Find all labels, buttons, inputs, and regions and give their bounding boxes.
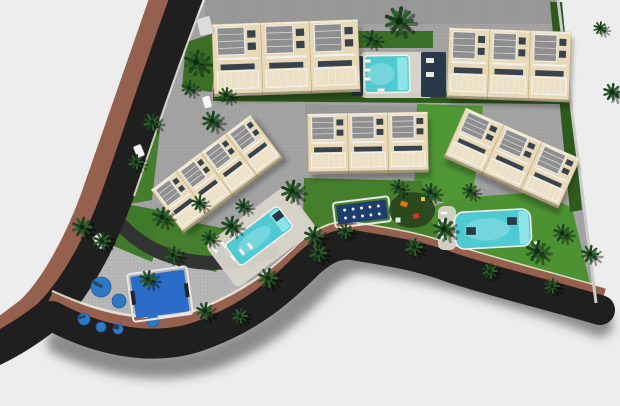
sun-lounger [364,60,371,63]
playground-rubber-pad [147,315,159,327]
palm-crown [610,90,614,94]
palm-crown [550,284,554,288]
palm-crown [150,120,154,124]
palm-crown [207,236,211,240]
window [296,41,305,48]
sun-lounger [364,69,371,72]
day-bed [508,218,517,225]
window [417,128,424,134]
glass-door [318,60,352,67]
masterplan-svg [0,0,620,406]
palm-crown [203,309,207,313]
window [377,129,384,135]
palm-crown [187,86,191,90]
window [296,29,305,36]
sun-lounger [364,78,371,81]
window [416,118,423,124]
palm-crown [241,204,245,208]
sun-lounger [441,212,448,215]
palm-crown [193,59,199,65]
palm-crown [395,17,402,24]
window [478,48,485,55]
building-block-2 [447,28,575,108]
building-block-4 [307,112,431,180]
window [559,39,566,46]
window [344,27,353,34]
palm-crown [238,314,242,318]
window [376,119,383,125]
window [559,51,566,58]
glass-door [494,69,523,76]
window [519,37,526,44]
palm-crown [134,160,138,164]
glass-door [354,146,382,151]
palm-crown [311,233,316,238]
glass-door [220,63,254,70]
window [247,30,256,37]
back-pavement-top [205,0,558,24]
multisport-court-surface [130,269,189,318]
playground-rubber-pad [96,322,106,332]
palm-crown [488,269,492,273]
play-equipment [396,218,401,223]
palm-crown [588,252,592,256]
play-equipment [413,213,420,219]
pool-house-lounger [426,58,434,63]
building-block-1 [212,19,364,102]
playground-rubber-pad [112,294,126,308]
palm-crown [289,188,295,194]
palm-crown [598,26,601,29]
masterplan-aerial-render [0,0,620,406]
palm-crown [171,253,175,257]
palm-crown [146,277,150,281]
palm-crown [197,201,201,205]
glass-door [314,147,342,152]
window [345,39,354,46]
palm-crown [159,214,164,219]
window [247,42,256,49]
palm-crown [534,248,540,254]
palm-crown [316,251,320,255]
window [478,36,485,43]
glass-door [269,62,303,69]
palm-crown [441,226,447,232]
palm-crown [468,189,472,193]
glass-door [454,67,483,74]
palm-crown [79,224,84,229]
pool-house-lounger [426,72,434,77]
palm-crown [100,239,104,243]
glass-door [394,146,422,151]
window [337,130,344,136]
pool-right-steps [518,211,530,244]
palm-crown [343,229,347,233]
play-equipment [421,197,425,201]
palm-crown [412,245,416,249]
palm-crown [369,37,373,41]
palm-crown [209,118,214,123]
pool-top [364,55,410,93]
glass-door [535,70,564,77]
window [518,49,525,56]
pool-top-steps [397,57,408,90]
pool-right [454,209,532,250]
palm-crown [428,190,432,194]
sun-lounger [378,89,385,92]
window [336,119,343,125]
palm-crown [396,185,400,189]
palm-crown [265,275,270,280]
palm-crown [224,93,228,97]
palm-crown [560,231,564,235]
day-bed [467,228,476,235]
palm-crown [228,223,233,228]
